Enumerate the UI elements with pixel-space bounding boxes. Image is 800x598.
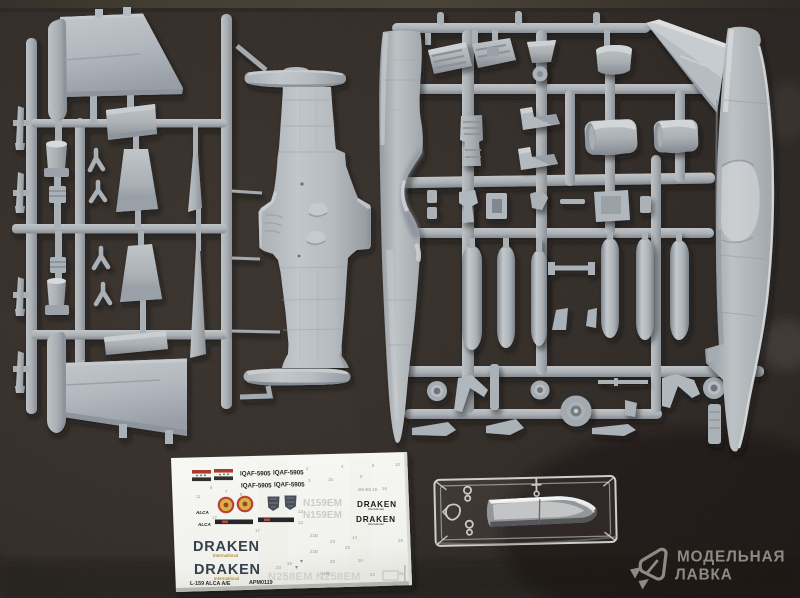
svg-text:14: 14: [352, 535, 357, 540]
svg-text:N159EM: N159EM: [303, 510, 342, 521]
svg-text:20: 20: [358, 558, 363, 563]
svg-text:19: 19: [287, 561, 292, 566]
svg-text:21: 21: [399, 571, 404, 576]
svg-text:22: 22: [370, 572, 375, 577]
svg-text:12: 12: [298, 520, 303, 525]
svg-text:N159EM: N159EM: [303, 498, 342, 509]
svg-text:IQAF-5905: IQAF-5905: [274, 482, 305, 489]
svg-text:11: 11: [196, 494, 201, 499]
svg-text:L-159 ALCA A/E: L-159 ALCA A/E: [190, 581, 231, 587]
svg-text:IQAF-5905: IQAF-5905: [241, 483, 272, 490]
svg-text:20: 20: [330, 559, 335, 564]
svg-text:17: 17: [255, 528, 260, 533]
svg-text:APM0119: APM0119: [249, 580, 273, 586]
svg-text:24: 24: [330, 539, 335, 544]
svg-text:16: 16: [382, 486, 387, 491]
svg-text:21B: 21B: [310, 533, 318, 538]
svg-text:15: 15: [328, 477, 333, 482]
svg-text:IQAF-5905: IQAF-5905: [240, 471, 271, 478]
svg-text:23: 23: [276, 565, 281, 570]
svg-text:N258EM N258EM: N258EM N258EM: [268, 571, 361, 583]
svg-text:ALCA: ALCA: [197, 522, 211, 527]
svg-text:IQAF-5905: IQAF-5905: [273, 470, 304, 477]
svg-text:ALCA: ALCA: [195, 510, 209, 515]
svg-text:International: International: [368, 522, 384, 526]
svg-text:21B: 21B: [310, 549, 318, 554]
svg-text:10: 10: [395, 462, 400, 467]
svg-text:МОДЕЛЬНАЯ: МОДЕЛЬНАЯ: [677, 549, 785, 566]
svg-text:25: 25: [345, 545, 350, 550]
svg-text:25: 25: [398, 538, 403, 543]
svg-text:ЛАВКА: ЛАВКА: [675, 567, 733, 584]
svg-text:C4(B: C4(B: [320, 571, 330, 576]
svg-text:i59 i59 18: i59 i59 18: [358, 487, 378, 492]
svg-text:17: 17: [212, 515, 217, 520]
svg-text:International: International: [213, 553, 238, 558]
svg-text:13: 13: [298, 509, 303, 514]
svg-text:International: International: [368, 507, 384, 511]
